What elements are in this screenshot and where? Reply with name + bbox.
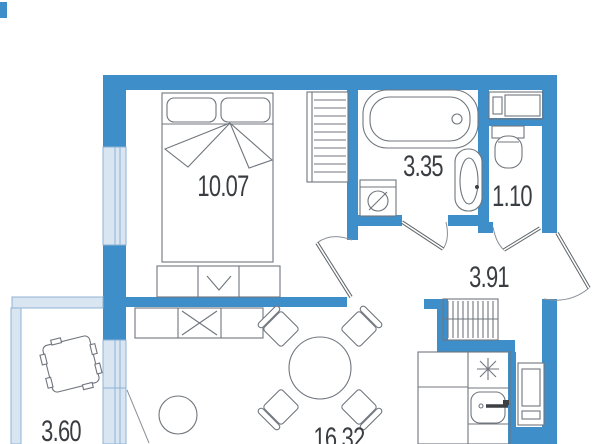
hob-icon (477, 358, 499, 380)
wall-bathroom-bottom-right (448, 215, 479, 226)
wall-right-upper (542, 75, 557, 233)
chair (340, 388, 383, 431)
bathtub (363, 90, 478, 148)
toilet (492, 126, 524, 168)
wall-left-upper (103, 75, 126, 147)
balcony-armchair (37, 330, 105, 398)
chair (257, 388, 300, 431)
wall-closet-bottom (437, 340, 515, 352)
wc-door (493, 227, 540, 250)
bedroom-door (317, 237, 352, 297)
floor-plan: 10.07 3.35 1.10 3.91 16.32 3.60 (0, 0, 600, 444)
kitchen-counter (418, 352, 510, 444)
hall-closet (443, 299, 498, 340)
wall-living-divider (120, 297, 347, 307)
wall-wc-bottom-stub (478, 222, 493, 233)
wardrobe (307, 92, 348, 182)
tv-stand (135, 308, 263, 338)
wall-fragment-top-left (0, 2, 7, 18)
double-bed (162, 93, 273, 262)
pouf (159, 396, 197, 434)
balcony-glazing-left (11, 308, 21, 444)
pillow (221, 98, 270, 122)
wall-bottom-right (514, 427, 544, 444)
entrance-door (544, 233, 589, 300)
chair (340, 305, 383, 348)
wall-bathroom-bottom-left (347, 215, 402, 226)
balcony-door (127, 390, 149, 443)
drain-icon (452, 114, 462, 124)
washing-machine-icon (360, 180, 396, 216)
dresser (157, 266, 280, 297)
bathroom-door (402, 222, 447, 249)
kitchen-sink (471, 392, 509, 423)
bathroom-sink (455, 149, 482, 211)
balcony-glazing-top (12, 297, 103, 308)
pillow (167, 98, 216, 122)
dining-table (289, 337, 351, 399)
refrigerator (518, 363, 544, 425)
water-heater (489, 92, 543, 119)
floor-plan-canvas (0, 0, 600, 444)
wall-left-middle (103, 245, 126, 340)
wall-top (103, 75, 557, 90)
